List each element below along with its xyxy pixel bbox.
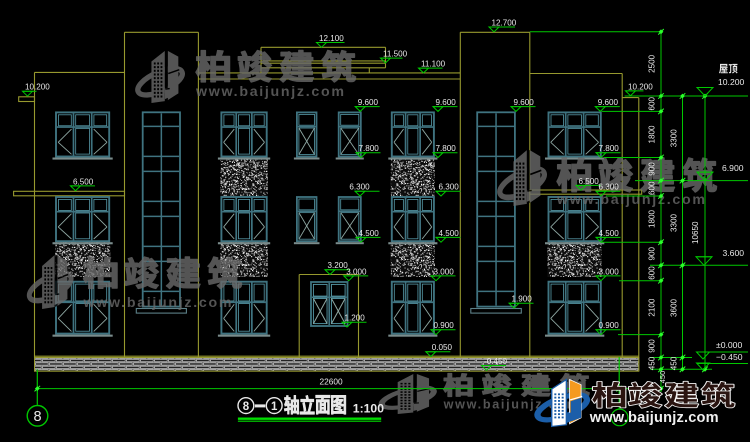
svg-text:4.500: 4.500 [599, 229, 620, 238]
svg-text:4.500: 4.500 [439, 229, 460, 238]
svg-text:3.000: 3.000 [434, 267, 455, 276]
svg-text:450: 450 [670, 356, 679, 370]
svg-text:±0.000: ±0.000 [716, 340, 742, 350]
svg-text:3600: 3600 [670, 299, 679, 318]
svg-text:9.600: 9.600 [436, 98, 457, 107]
svg-text:1800: 1800 [648, 125, 657, 144]
svg-text:12.700: 12.700 [492, 18, 517, 27]
svg-text:2100: 2100 [648, 298, 657, 317]
svg-text:www.baijunjz.com: www.baijunjz.com [589, 410, 719, 426]
svg-text:11.100: 11.100 [421, 60, 446, 69]
svg-text:9.600: 9.600 [598, 98, 619, 107]
svg-text:1: 1 [271, 401, 278, 413]
svg-text:10650: 10650 [691, 221, 700, 244]
svg-text:600: 600 [648, 266, 657, 280]
svg-text:1.900: 1.900 [512, 295, 533, 304]
svg-text:900: 900 [648, 246, 657, 260]
svg-text:-0.450: -0.450 [484, 357, 507, 366]
svg-text:www.baijunjz.com: www.baijunjz.com [83, 295, 234, 311]
svg-text:3.000: 3.000 [599, 267, 620, 276]
svg-text:1:100: 1:100 [353, 401, 384, 415]
svg-text:10.200: 10.200 [25, 83, 50, 92]
svg-text:www.baijunjz.com: www.baijunjz.com [556, 192, 707, 208]
svg-text:6.300: 6.300 [439, 183, 460, 192]
svg-text:3.200: 3.200 [328, 261, 349, 270]
svg-text:8: 8 [243, 401, 250, 413]
svg-text:7.800: 7.800 [359, 144, 380, 153]
svg-text:−0.450: −0.450 [716, 352, 743, 362]
svg-text:12.100: 12.100 [319, 34, 344, 43]
svg-text:8: 8 [33, 409, 41, 425]
svg-text:9.600: 9.600 [358, 98, 379, 107]
svg-text:10.200: 10.200 [628, 82, 653, 91]
svg-text:6.300: 6.300 [349, 183, 370, 192]
svg-text:600: 600 [648, 181, 657, 195]
svg-text:2500: 2500 [648, 54, 657, 73]
svg-text:0.900: 0.900 [599, 321, 620, 330]
svg-text:0.050: 0.050 [432, 343, 453, 352]
svg-text:3300: 3300 [670, 214, 679, 233]
svg-text:900: 900 [648, 339, 657, 353]
svg-text:6.300: 6.300 [599, 183, 620, 192]
svg-text:6.500: 6.500 [73, 177, 94, 186]
svg-text:600: 600 [648, 96, 657, 110]
svg-text:www.baijunjz.com: www.baijunjz.com [195, 84, 346, 100]
svg-text:450: 450 [648, 356, 657, 370]
svg-text:6.900: 6.900 [722, 163, 744, 173]
svg-text:3.000: 3.000 [346, 267, 367, 276]
svg-text:0.900: 0.900 [434, 321, 455, 330]
svg-text:22600: 22600 [320, 376, 343, 386]
svg-text:10.200: 10.200 [718, 77, 745, 87]
svg-text:1800: 1800 [648, 210, 657, 229]
svg-text:7.800: 7.800 [599, 144, 620, 153]
svg-text:3300: 3300 [670, 129, 679, 148]
svg-text:11.500: 11.500 [383, 50, 408, 59]
svg-text:6.500: 6.500 [579, 177, 600, 186]
svg-text:9.600: 9.600 [514, 98, 535, 107]
svg-text:450: 450 [658, 371, 667, 384]
svg-text:900: 900 [648, 162, 657, 176]
svg-text:7.800: 7.800 [436, 144, 457, 153]
svg-text:1.200: 1.200 [345, 314, 366, 323]
svg-text:3.600: 3.600 [723, 248, 745, 258]
svg-text:4.500: 4.500 [359, 229, 380, 238]
